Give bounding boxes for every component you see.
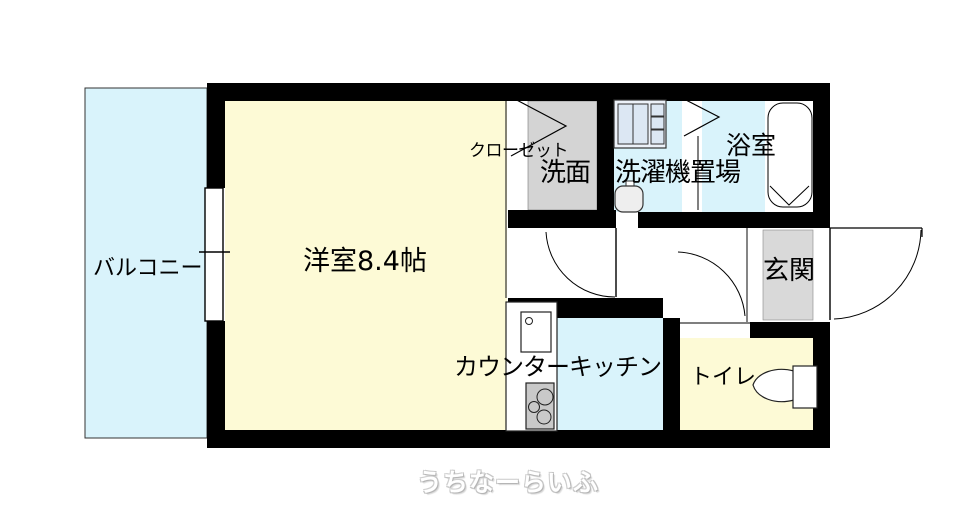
entrance-label: 玄関	[763, 258, 815, 284]
main-room-label: 洋室8.4帖	[303, 248, 427, 275]
toilet-tank	[793, 366, 817, 408]
wall-left-lower	[207, 321, 225, 448]
wall-right-upper	[813, 83, 830, 228]
wall-closet-washroom	[597, 101, 614, 211]
wall-bottom	[207, 430, 830, 448]
room-door-arc	[546, 232, 615, 297]
balcony-label: バルコニー	[93, 258, 203, 280]
watermark: うちなーらいふ	[417, 470, 599, 495]
bathroom-label: 浴室	[726, 133, 776, 158]
wall-toilet-north	[750, 322, 816, 338]
hall-door-arc	[678, 252, 745, 316]
kitchen-label: カウンターキッチン	[454, 355, 661, 379]
washing-machine-icon	[614, 100, 666, 148]
washer-panel-3	[651, 130, 664, 144]
wall-below-closet	[508, 210, 616, 228]
wall-kitchen-toilet	[663, 318, 680, 430]
washer-panel-2	[651, 117, 664, 129]
floor-plan: バルコニー 洋室8.4帖 クローゼット 洗面・洗濯機置場 浴室 玄関 カウンター…	[0, 0, 958, 522]
washroom-label: 洗面・洗濯機置場	[540, 160, 740, 186]
gas-stove	[526, 383, 554, 429]
washer-panel-1	[651, 104, 664, 116]
wall-left-upper	[207, 83, 225, 188]
toilet-label: トイレ	[690, 367, 756, 389]
window-frame	[205, 188, 223, 321]
entrance-door-arc	[834, 230, 921, 319]
wall-below-bathroom	[638, 212, 830, 228]
kitchen-sink	[521, 312, 551, 352]
basin-bowl	[615, 186, 643, 212]
wall-top	[207, 83, 830, 101]
